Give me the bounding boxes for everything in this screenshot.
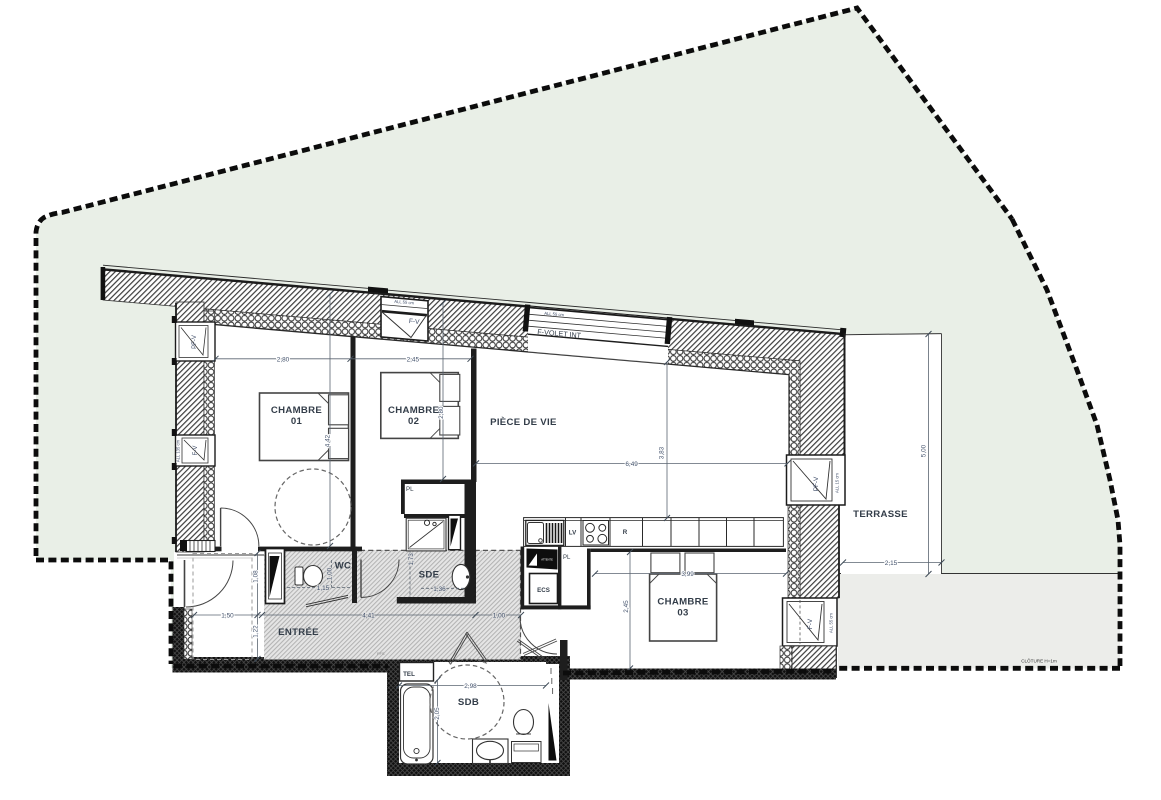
svg-text:F-V: F-V xyxy=(193,446,199,456)
svg-text:1,73: 1,73 xyxy=(408,553,415,566)
svg-text:CHAMBRE: CHAMBRE xyxy=(657,597,708,608)
svg-text:ENTRÉE: ENTRÉE xyxy=(278,626,319,638)
svg-text:FFS: FFS xyxy=(377,651,385,656)
svg-text:2,80: 2,80 xyxy=(277,356,290,363)
svg-text:1,50: 1,50 xyxy=(221,613,234,620)
svg-text:2,05: 2,05 xyxy=(434,707,441,720)
svg-text:4,41: 4,41 xyxy=(362,613,375,620)
svg-text:PIÈCE DE VIE: PIÈCE DE VIE xyxy=(490,416,557,428)
svg-text:1,15: 1,15 xyxy=(317,585,330,592)
svg-text:F-V: F-V xyxy=(409,318,421,326)
svg-text:SDB: SDB xyxy=(458,697,479,708)
svg-text:02: 02 xyxy=(408,416,419,427)
svg-text:2,45: 2,45 xyxy=(407,356,420,363)
svg-text:4,42: 4,42 xyxy=(325,434,332,447)
svg-text:1,00: 1,00 xyxy=(493,613,506,620)
svg-text:PF-V: PF-V xyxy=(192,335,198,349)
svg-text:CLÔTURE H=1m: CLÔTURE H=1m xyxy=(1021,658,1057,664)
svg-text:1,22: 1,22 xyxy=(253,625,260,638)
svg-text:SDE: SDE xyxy=(419,569,440,580)
svg-text:ALL 55 cm: ALL 55 cm xyxy=(829,613,834,633)
svg-text:ALL 135 cm: ALL 135 cm xyxy=(176,439,181,462)
svg-text:TERRASSE: TERRASSE xyxy=(853,509,908,520)
svg-text:1,00: 1,00 xyxy=(327,567,334,580)
svg-text:CHAMBRE: CHAMBRE xyxy=(388,405,439,416)
svg-text:3,99: 3,99 xyxy=(681,571,694,578)
svg-text:01: 01 xyxy=(291,416,303,427)
svg-text:6,49: 6,49 xyxy=(625,461,638,468)
svg-text:1,36: 1,36 xyxy=(433,586,446,593)
svg-text:3,83: 3,83 xyxy=(659,446,666,459)
svg-text:2,98: 2,98 xyxy=(464,683,477,690)
svg-text:ATTENTE: ATTENTE xyxy=(541,558,553,562)
svg-text:2,45: 2,45 xyxy=(623,600,630,613)
svg-text:1,08: 1,08 xyxy=(253,570,260,583)
svg-text:ALL 15 cm: ALL 15 cm xyxy=(835,473,840,493)
svg-text:ECS: ECS xyxy=(537,587,550,594)
svg-text:2,15: 2,15 xyxy=(885,560,898,567)
svg-text:CHAMBRE: CHAMBRE xyxy=(271,405,322,416)
svg-text:F-V: F-V xyxy=(807,618,814,629)
svg-text:LV: LV xyxy=(569,530,577,537)
svg-text:PL: PL xyxy=(406,486,414,493)
svg-text:WC: WC xyxy=(335,561,352,572)
svg-text:PF-V: PF-V xyxy=(813,476,820,491)
svg-text:R: R xyxy=(623,529,628,536)
svg-text:PL: PL xyxy=(563,555,571,561)
svg-text:5,00: 5,00 xyxy=(921,444,928,457)
svg-text:03: 03 xyxy=(677,608,688,619)
svg-text:TEL: TEL xyxy=(403,671,415,678)
